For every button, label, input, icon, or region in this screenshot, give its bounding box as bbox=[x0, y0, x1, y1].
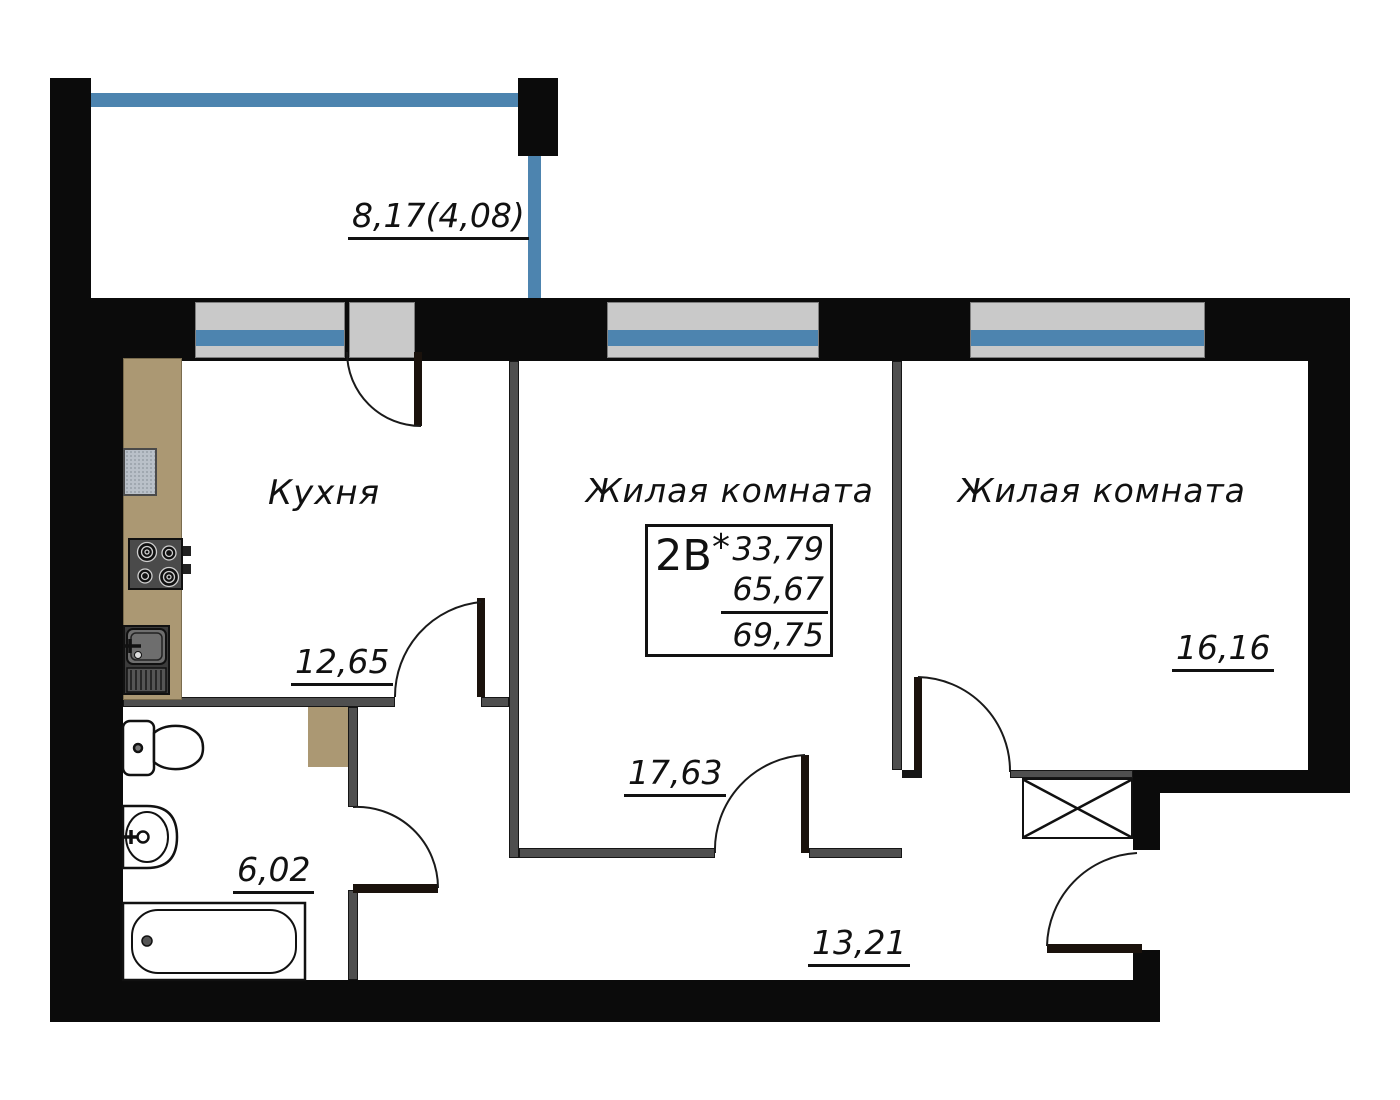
left-exterior-wall bbox=[50, 298, 123, 1022]
living2-area-value: 16,16 bbox=[1172, 628, 1274, 672]
balcony-door-arc bbox=[347, 352, 421, 426]
kitchen-area-value: 12,65 bbox=[291, 642, 393, 686]
washbasin bbox=[123, 806, 177, 868]
balcony-door-panel bbox=[349, 302, 415, 358]
living2-window bbox=[970, 302, 1205, 358]
kitchen-door-arc bbox=[395, 602, 481, 697]
partition-living1-bottom-left bbox=[519, 848, 715, 858]
duct-block bbox=[308, 707, 348, 767]
balcony-left-wall bbox=[50, 78, 91, 298]
partition-kitchen-living1 bbox=[509, 361, 519, 858]
balcony-top-rail bbox=[91, 93, 518, 107]
balcony-area-label: 8,17(4,08) bbox=[348, 196, 529, 235]
stamp-area-1: 33,79 bbox=[732, 530, 824, 568]
kitchen-area-label: 12,65 bbox=[291, 642, 393, 681]
living2-window-glass bbox=[971, 330, 1204, 346]
bottom-exterior-wall bbox=[50, 980, 1133, 1022]
balcony-right-rail bbox=[528, 156, 541, 298]
living2-door-arc bbox=[918, 677, 1010, 772]
partition-living1-bottom-right bbox=[809, 848, 902, 858]
partition-bathroom-lower bbox=[348, 890, 358, 980]
living2-area-label: 16,16 bbox=[1172, 628, 1274, 667]
ventilation-shaft bbox=[1022, 778, 1133, 839]
room2-bottom-wall bbox=[1133, 770, 1350, 793]
living2-door-leaf bbox=[914, 677, 922, 770]
stove-knob-2 bbox=[183, 564, 191, 574]
bathroom-door-arc bbox=[353, 807, 438, 888]
living1-area-label: 17,63 bbox=[624, 753, 726, 792]
asterisk-mark: * bbox=[712, 527, 730, 568]
stamp-area-2: 65,67 bbox=[732, 570, 824, 608]
living2-name-label: Жилая комната bbox=[958, 471, 1246, 510]
entry-wall-lower bbox=[1133, 950, 1160, 1022]
living1-window-glass bbox=[608, 330, 818, 346]
bathroom-area-value: 6,02 bbox=[233, 850, 314, 894]
apartment-type: 2В bbox=[655, 531, 712, 581]
entry-door-arc bbox=[1047, 853, 1137, 946]
apartment-stamp: 2В * 33,79 65,67 69,75 bbox=[645, 524, 833, 657]
hallway-area-label: 13,21 bbox=[808, 923, 910, 962]
living1-area-value: 17,63 bbox=[624, 753, 726, 797]
stove-knob-1 bbox=[183, 546, 191, 556]
kitchen-window bbox=[195, 302, 345, 358]
door-step-living2 bbox=[902, 770, 922, 778]
bathtub bbox=[123, 903, 305, 980]
stamp-area-total: 69,75 bbox=[732, 616, 824, 654]
balcony-corner-block bbox=[518, 78, 558, 156]
bathroom-door-leaf bbox=[353, 884, 438, 893]
kitchen-sink-unit bbox=[123, 625, 170, 695]
stove bbox=[128, 538, 183, 590]
partition-bathroom-upper bbox=[348, 707, 358, 807]
floor-plan: 8,17(4,08) Кухня 12,65 Жилая комната 17,… bbox=[0, 0, 1400, 1100]
shaft-top-rail bbox=[1010, 770, 1133, 778]
partition-kitchen-bottom-right bbox=[481, 697, 509, 707]
balcony-door-leaf bbox=[414, 352, 422, 426]
right-exterior-wall bbox=[1308, 298, 1350, 793]
entry-door-leaf bbox=[1047, 944, 1142, 953]
living1-door-leaf bbox=[801, 755, 809, 853]
living1-window bbox=[607, 302, 819, 358]
kitchen-door-leaf bbox=[477, 598, 485, 697]
kitchen-window-glass bbox=[196, 330, 344, 346]
balcony-area-value: 8,17(4,08) bbox=[348, 196, 529, 240]
stamp-sum-line bbox=[721, 611, 828, 614]
entry-wall-upper bbox=[1133, 770, 1160, 850]
partition-living1-living2 bbox=[892, 361, 902, 770]
living1-name-label: Жилая комната bbox=[586, 471, 874, 510]
bathroom-area-label: 6,02 bbox=[233, 850, 314, 889]
living1-door-arc bbox=[715, 755, 805, 853]
toilet bbox=[123, 721, 203, 775]
fridge bbox=[123, 448, 157, 496]
kitchen-name-label: Кухня bbox=[268, 473, 380, 513]
hallway-area-value: 13,21 bbox=[808, 923, 910, 967]
